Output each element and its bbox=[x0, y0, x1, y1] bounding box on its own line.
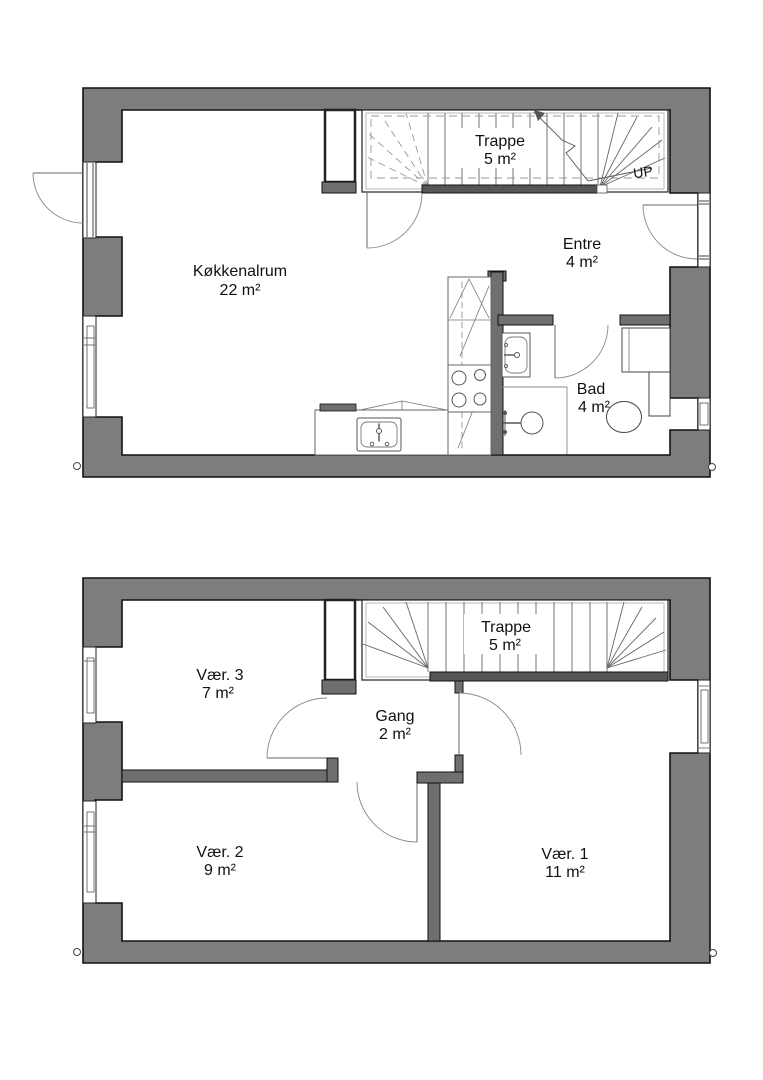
room-label-vaer1: Vær. 1 bbox=[541, 846, 588, 863]
upper-floor-plan: Trappe 5 m² UP Entre 4 m² Køkkenalrum 22… bbox=[33, 88, 716, 477]
room-area-gang: 2 m² bbox=[379, 726, 412, 743]
window-vaer1 bbox=[698, 680, 710, 753]
door-swing-arc bbox=[643, 205, 697, 259]
room-area-entre: 4 m² bbox=[566, 254, 599, 271]
entre-door-right bbox=[643, 193, 710, 267]
door-swing-arc bbox=[357, 782, 417, 842]
shower-head bbox=[521, 412, 543, 434]
stove-burner bbox=[474, 393, 486, 405]
door-swing-arc bbox=[555, 325, 608, 378]
kitchen-fixtures bbox=[315, 277, 491, 455]
room-area-trappe-upper: 5 m² bbox=[484, 151, 517, 168]
room-area-vaer3: 7 m² bbox=[202, 685, 235, 702]
floor-plan-page: Trappe 5 m² UP Entre 4 m² Køkkenalrum 22… bbox=[0, 0, 763, 1080]
lower-floor-plan: Trappe 5 m² Vær. 3 7 m² Gang 2 m² Vær. 2… bbox=[74, 578, 717, 963]
room-area-vaer2: 9 m² bbox=[204, 862, 237, 879]
room-label-bad: Bad bbox=[577, 381, 605, 398]
room-label-vaer2: Vær. 2 bbox=[196, 844, 243, 861]
room-label-trappe-lower: Trappe bbox=[481, 619, 531, 636]
window-vaer3 bbox=[83, 647, 96, 723]
stair-up-label: UP bbox=[632, 163, 653, 182]
room-label-vaer3: Vær. 3 bbox=[196, 667, 243, 684]
room-area-vaer1: 11 m² bbox=[545, 864, 585, 881]
toilet bbox=[607, 402, 642, 433]
stair-stub-wall bbox=[325, 110, 355, 182]
staircase-upper bbox=[322, 110, 668, 248]
floor-plan-drawing: Trappe 5 m² UP Entre 4 m² Køkkenalrum 22… bbox=[0, 0, 763, 1080]
bad-north-wall-right bbox=[620, 315, 670, 325]
room-area-trappe-lower: 5 m² bbox=[489, 637, 522, 654]
shower bbox=[502, 387, 567, 454]
door-swing-arc bbox=[367, 193, 422, 248]
room-label-kokkenalrum: Køkkenalrum bbox=[193, 263, 287, 280]
door-swing-arc bbox=[267, 698, 327, 758]
interior-walls-lower bbox=[122, 681, 521, 941]
stove-burner bbox=[452, 393, 466, 407]
stove-burner bbox=[475, 370, 486, 381]
bathroom-sink bbox=[502, 333, 530, 377]
vaer1-vaer2-wall bbox=[428, 783, 440, 941]
room-area-bad: 4 m² bbox=[578, 399, 611, 416]
stove-burner bbox=[452, 371, 466, 385]
gang-south-wall-right bbox=[417, 772, 463, 783]
kitchen-bad-wall bbox=[491, 272, 503, 455]
drain-marker bbox=[74, 949, 81, 956]
entrance-door-left bbox=[33, 162, 96, 238]
window-bad-right bbox=[698, 398, 710, 430]
stair-lower-wall bbox=[422, 185, 597, 193]
room-label-trappe-upper: Trappe bbox=[475, 133, 525, 150]
drain-marker bbox=[709, 464, 716, 471]
stair-stub-wall bbox=[325, 600, 355, 680]
gang-south-wall-left bbox=[122, 770, 327, 782]
toilet-cistern bbox=[649, 372, 670, 416]
window-vaer2 bbox=[83, 801, 96, 903]
room-area-kokkenalrum: 22 m² bbox=[220, 282, 262, 299]
drain-marker bbox=[710, 950, 717, 957]
bad-north-wall-left bbox=[498, 315, 553, 325]
stair-lower-wall bbox=[430, 672, 668, 681]
kitchen-sink bbox=[357, 418, 401, 451]
room-label-gang: Gang bbox=[375, 708, 414, 725]
room-label-entre: Entre bbox=[563, 236, 601, 253]
drain-marker bbox=[74, 463, 81, 470]
door-swing-arc bbox=[459, 693, 521, 755]
radiator bbox=[320, 404, 356, 411]
door-swing-arc bbox=[33, 173, 83, 223]
window-kitchen-left bbox=[83, 316, 96, 417]
